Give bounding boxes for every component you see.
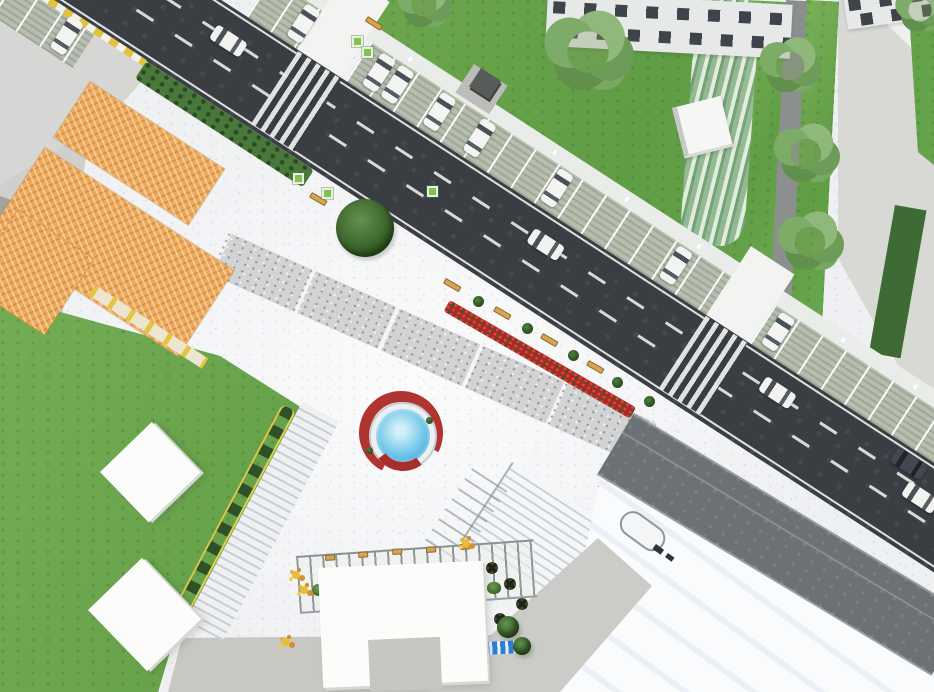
cafe-table	[486, 562, 498, 574]
shrub	[612, 377, 623, 388]
pergola-planter	[392, 548, 402, 555]
pergola-bush	[487, 582, 501, 594]
shrub	[522, 323, 533, 334]
plaza-tree-round	[336, 199, 394, 257]
yellow-flowers	[300, 586, 308, 594]
planter-square	[322, 188, 333, 199]
pergola-planter	[358, 551, 368, 558]
planter-square	[352, 36, 363, 47]
shrub	[568, 350, 579, 361]
tree-sparse	[795, 227, 826, 258]
tree-sparse	[791, 139, 822, 170]
yellow-flowers	[292, 571, 300, 579]
tree-sparse	[776, 52, 805, 81]
yellow-flowers	[282, 638, 290, 646]
fountain-shrub	[426, 417, 433, 424]
cafe-table	[504, 578, 516, 590]
shrub	[473, 296, 484, 307]
shrub	[644, 396, 655, 407]
planter-square	[293, 173, 304, 184]
planter-square	[427, 186, 438, 197]
fountain-shrub	[366, 447, 373, 454]
planter-square	[362, 47, 373, 58]
aerial-rendering-scene	[0, 0, 934, 692]
yellow-flowers	[462, 539, 470, 547]
pergola-planter	[325, 554, 335, 561]
small-tree	[497, 616, 519, 638]
tree-sparse	[567, 31, 608, 72]
building-notch	[368, 637, 442, 692]
fountain	[366, 399, 440, 473]
cafe-table	[516, 598, 528, 610]
small-tree	[513, 637, 531, 655]
pergola-planter	[426, 546, 436, 553]
